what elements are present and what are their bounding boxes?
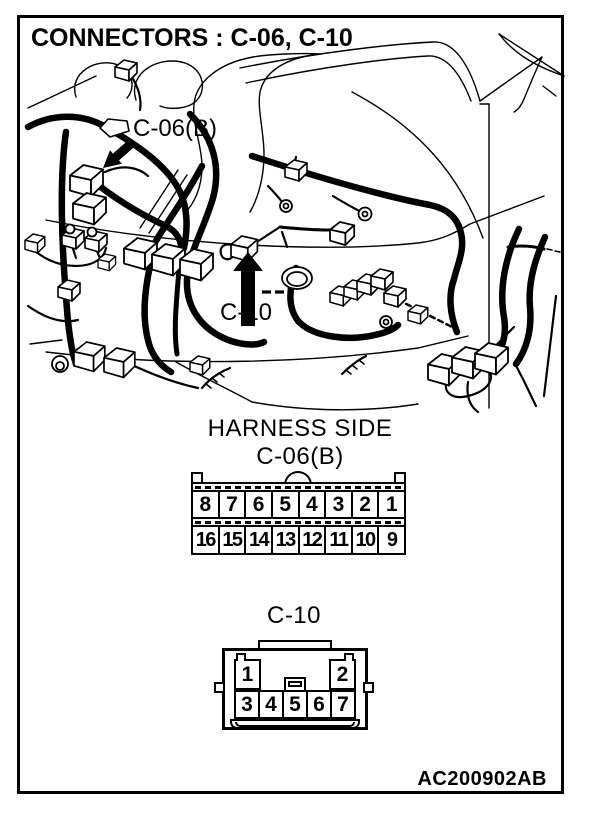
- c06-callout-arrow: [103, 139, 136, 168]
- c10-pin-1-tab: [236, 653, 246, 661]
- pin-cell: 14: [244, 527, 271, 553]
- pin-cell: 2: [337, 663, 349, 687]
- c06-body: 87654321 161514131211109: [191, 482, 406, 555]
- harness-side-heading: HARNESS SIDE: [150, 415, 450, 443]
- c10-bottom-lip-inner: [235, 722, 355, 727]
- connector-c10-pinout: 1 2 34567: [214, 640, 374, 732]
- pin-cell: 13: [271, 527, 298, 553]
- c10-bottom-lip: [230, 719, 360, 729]
- pin-cell: 7: [330, 692, 354, 717]
- pin-cell: 11: [324, 527, 351, 553]
- pin-cell: 3: [236, 692, 258, 717]
- pin-cell: 1: [377, 492, 404, 517]
- pin-cell: 4: [258, 692, 282, 717]
- connector-c06-pinout: 87654321 161514131211109: [191, 472, 406, 555]
- pin-cell: 9: [377, 527, 404, 553]
- c06-hatch-strip: [193, 484, 404, 492]
- pin-cell: 6: [306, 692, 330, 717]
- c10-body: 1 2 34567: [222, 648, 368, 730]
- c10-side-tab-left: [214, 682, 225, 693]
- c10-pin-1: 1: [234, 659, 261, 690]
- harness-side-block: HARNESS SIDE C-06(B): [150, 415, 450, 471]
- pin-cell: 12: [298, 527, 325, 553]
- connector-boxes: [25, 60, 508, 386]
- c06-hatch-strip: [193, 519, 404, 527]
- c06-connector-label: C-06(B): [150, 443, 450, 471]
- c10-pin-2: 2: [329, 659, 356, 690]
- callout-c10-label: C-10: [220, 299, 272, 326]
- pin-cell: 1: [242, 663, 254, 687]
- c06-pin-row-bottom: 161514131211109: [193, 527, 404, 553]
- c06-flag-connector: [100, 119, 129, 137]
- pin-cell: 7: [218, 492, 245, 517]
- pin-cell: 3: [324, 492, 351, 517]
- pin-cell: 2: [351, 492, 378, 517]
- pin-cell: 10: [351, 527, 378, 553]
- figure-code: AC200902AB: [417, 768, 547, 791]
- pin-cell: 5: [282, 692, 306, 717]
- c10-pin-row-bottom: 34567: [234, 690, 356, 719]
- c10-latch: [284, 677, 306, 692]
- pin-cell: 16: [193, 527, 218, 553]
- c06-pin-row-top: 87654321: [193, 492, 404, 519]
- pin-cell: 8: [193, 492, 218, 517]
- c10-side-tab-right: [363, 682, 374, 693]
- c10-latch-inner: [288, 681, 302, 687]
- c10-pin-2-tab: [344, 653, 354, 661]
- callout-c06-label: C-06(B): [133, 115, 217, 142]
- pin-cell: 4: [298, 492, 325, 517]
- pin-cell: 6: [244, 492, 271, 517]
- pin-cell: 5: [271, 492, 298, 517]
- manual-page: CONNECTORS : C-06, C-10: [0, 0, 608, 828]
- c10-connector-label: C-10: [214, 602, 374, 630]
- pin-cell: 15: [218, 527, 245, 553]
